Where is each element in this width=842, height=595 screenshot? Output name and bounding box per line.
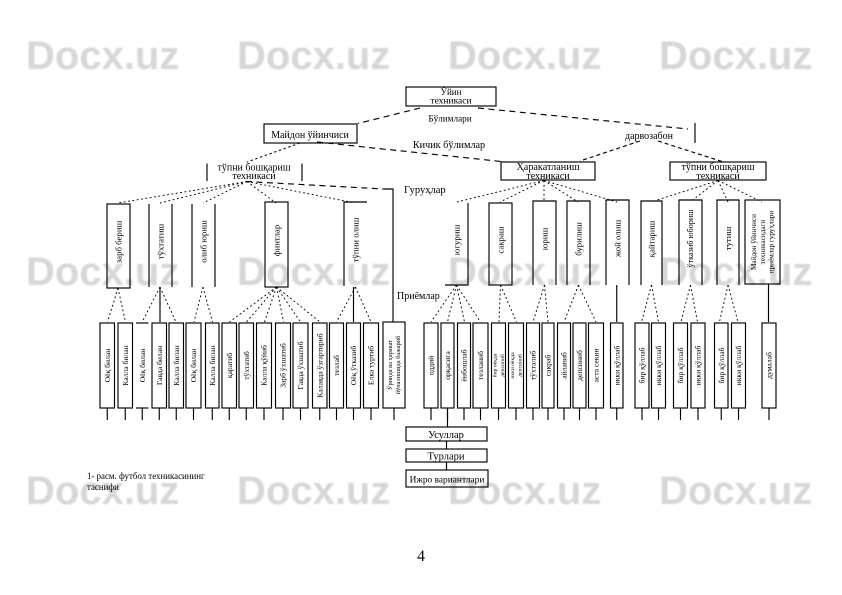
svg-text:Оёқ ўтказиб: Оёқ ўтказиб — [349, 346, 358, 386]
svg-text:тўхтатиш: тўхтатиш — [155, 224, 165, 260]
svg-text:олиб юриш: олиб юриш — [198, 220, 208, 263]
svg-text:Турлари: Турлари — [427, 452, 464, 463]
svg-text:югуриш: югуриш — [451, 225, 461, 256]
svg-text:Елка туртиб: Елка туртиб — [367, 346, 376, 385]
svg-text:икки қўллаб: икки қўллаб — [612, 346, 621, 386]
svg-text:икки қўллаб: икки қўллаб — [654, 346, 663, 386]
svg-text:икки қўллаб: икки қўллаб — [694, 346, 703, 386]
svg-text:Майдон ўйинчиси: Майдон ўйинчиси — [750, 214, 758, 270]
svg-text:ёнбошлаб: ёнбошлаб — [460, 349, 469, 381]
svg-text:йўналишида бажариб: йўналишида бажариб — [395, 335, 402, 395]
svg-text:депсиниб: депсиниб — [516, 354, 523, 377]
svg-text:Кичик бўлимлар: Кичик бўлимлар — [413, 140, 485, 151]
svg-text:қайтариш: қайтариш — [646, 220, 656, 257]
svg-text:Оёқ билан: Оёқ билан — [138, 349, 147, 383]
svg-text:айланиб: айланиб — [560, 352, 569, 379]
svg-text:тезлаб: тезлаб — [332, 355, 341, 376]
svg-text:ўтказиб юбориш: ўтказиб юбориш — [686, 209, 695, 268]
svg-text:Ўйин: Ўйин — [441, 87, 462, 97]
svg-text:депсиниб: депсиниб — [575, 350, 584, 381]
svg-text:Зарб ўхшатиб: Зарб ўхшатиб — [279, 343, 288, 388]
svg-text:таснифи: таснифи — [87, 482, 119, 492]
svg-text:Калла қўйиб: Калла қўйиб — [260, 345, 269, 386]
svg-text:Усуллар: Усуллар — [428, 430, 464, 441]
svg-text:бир қўллаб: бир қўллаб — [676, 347, 685, 383]
svg-text:икки қўллаб: икки қўллаб — [734, 346, 743, 386]
svg-text:Калла билан: Калла билан — [208, 345, 217, 385]
svg-text:финтлар: финтлар — [271, 224, 281, 256]
svg-text:Docx.uz: Docx.uz — [659, 469, 812, 513]
svg-text:техникаси: техникаси — [526, 171, 570, 182]
svg-text:Гуруҳлар: Гуруҳлар — [404, 185, 446, 196]
svg-text:дарвозабон: дарвозабон — [625, 131, 674, 142]
svg-text:икки оёқда: икки оёқда — [510, 352, 516, 379]
svg-text:техникасидаги: техникасидаги — [759, 219, 767, 264]
svg-text:зарб бериш: зарб бериш — [113, 220, 123, 263]
svg-text:тўхталиб: тўхталиб — [529, 351, 538, 380]
svg-text:бир оёқда: бир оёқда — [492, 353, 499, 377]
svg-text:Docx.uz: Docx.uz — [659, 250, 812, 294]
svg-text:Оёқ билан: Оёқ билан — [103, 349, 112, 383]
svg-text:1- расм. футбол техникасининг: 1- расм. футбол техникасининг — [87, 471, 205, 481]
svg-text:бир қўллаб: бир қўллаб — [717, 347, 726, 383]
svg-text:техникаси: техникаси — [232, 171, 276, 182]
svg-text:Калла билан: Калла билан — [121, 345, 130, 385]
svg-text:орқасига: орқасига — [443, 351, 452, 380]
svg-text:Бўлимлари: Бўлимлари — [428, 114, 471, 124]
svg-text:Docx.uz: Docx.uz — [237, 250, 390, 294]
svg-text:Ўрнида ва ҳаракат: Ўрнида ва ҳаракат — [386, 340, 394, 390]
svg-text:техникаси: техникаси — [430, 97, 471, 107]
svg-text:Docx.uz: Docx.uz — [26, 34, 179, 78]
svg-text:тўпни олиш: тўпни олиш — [350, 217, 360, 262]
svg-text:Калавда ўзгартириб: Калавда ўзгартириб — [315, 333, 324, 397]
svg-text:Приёмлар: Приёмлар — [397, 291, 440, 302]
svg-text:4: 4 — [417, 548, 425, 565]
svg-text:Docx.uz: Docx.uz — [237, 469, 390, 513]
svg-text:сакраш: сакраш — [495, 226, 505, 253]
svg-text:Майдон ўйинчиси: Майдон ўйинчиси — [271, 130, 349, 141]
svg-text:Docx.uz: Docx.uz — [237, 34, 390, 78]
svg-text:тутиш: тутиш — [723, 227, 733, 251]
svg-text:сакраб: сакраб — [544, 355, 553, 377]
svg-text:бир қўллаб: бир қўллаб — [638, 347, 647, 383]
svg-text:думалаб: думалаб — [765, 352, 774, 379]
svg-text:оддий: оддий — [427, 356, 436, 375]
svg-text:Калла билан: Калла билан — [172, 345, 181, 385]
svg-text:Оёқ билан: Оёқ билан — [189, 349, 198, 383]
svg-text:юриш: юриш — [539, 228, 549, 251]
svg-text:Ижро вариантлари: Ижро вариантлари — [410, 476, 485, 486]
svg-text:депсиниб: депсиниб — [499, 354, 506, 377]
svg-text:тезланиб: тезланиб — [476, 351, 485, 380]
svg-text:Docx.uz: Docx.uz — [448, 34, 601, 78]
svg-text:аста секин: аста секин — [592, 348, 601, 382]
svg-text:Гавда билан: Гавда билан — [155, 346, 164, 385]
svg-text:бурилиш: бурилиш — [573, 222, 583, 256]
svg-text:Гавда ўхшатиб: Гавда ўхшатиб — [296, 341, 305, 389]
svg-text:қаратиб: қаратиб — [225, 353, 234, 378]
svg-text:тўхтатиб: тўхтатиб — [242, 351, 251, 380]
svg-text:Docx.uz: Docx.uz — [659, 34, 812, 78]
svg-text:приёмлар гуруҳлари: приёмлар гуруҳлари — [768, 211, 776, 274]
svg-text:жой олиш: жой олиш — [612, 220, 622, 259]
